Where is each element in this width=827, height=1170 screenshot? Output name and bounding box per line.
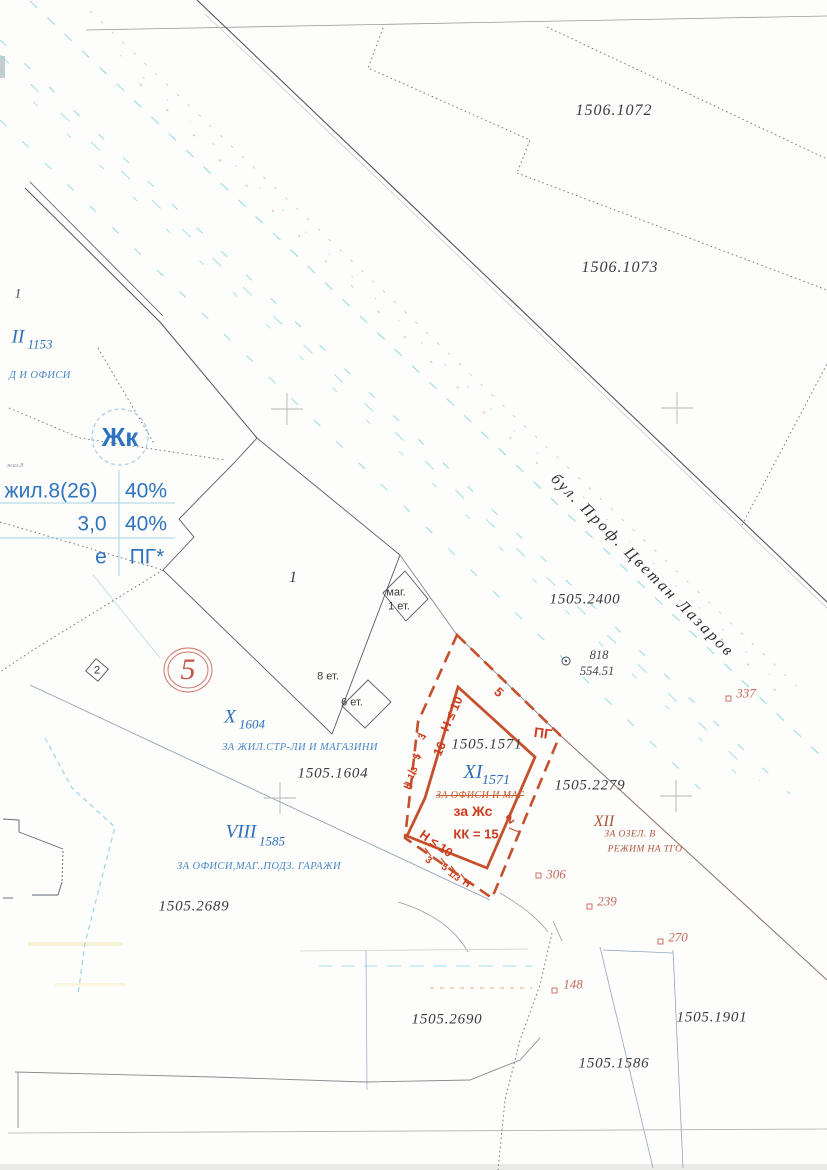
upi-x-roman: X bbox=[224, 708, 236, 727]
point-148-number: 148 bbox=[563, 978, 583, 991]
parcel-number-1505-2279: 1505.2279 bbox=[555, 779, 626, 794]
cadastral-map: 1 II 1153 Д И ОФИСИ Жк жил.8 жил.8(26) 4… bbox=[0, 0, 827, 1170]
point2-number: 2 bbox=[94, 666, 100, 677]
upi-x-use-label: ЗА ЖИЛ.СТР-ЛИ И МАГАЗИНИ bbox=[222, 743, 378, 754]
building1-number: 1 bbox=[289, 570, 297, 586]
parcel-number-1505-2400: 1505.2400 bbox=[550, 593, 621, 608]
plan-table-r1-right: 40% bbox=[125, 481, 167, 502]
point-239-number: 239 bbox=[597, 895, 617, 908]
plan-table-r3-left: е bbox=[95, 547, 107, 568]
upi-xi-pg-label: ПГ bbox=[533, 725, 553, 741]
point-337-number: 337 bbox=[736, 687, 756, 700]
parcel-number-1505-1604: 1505.1604 bbox=[298, 767, 369, 782]
parcel-number-1505-1901: 1505.1901 bbox=[677, 1011, 748, 1026]
survey-point-icon bbox=[536, 657, 731, 993]
plan-table-r2-right: 40% bbox=[125, 514, 167, 535]
upi-xi-number: 1571 bbox=[482, 774, 510, 788]
parcel-boundaries-west bbox=[0, 348, 225, 672]
corner-number: 1 bbox=[15, 287, 22, 300]
map-linework bbox=[0, 0, 827, 1170]
upi-x-number: 1604 bbox=[239, 718, 265, 731]
upi-xi-old-use-label: ЗА ОФИСИ И МАГ bbox=[436, 791, 524, 801]
upi-xii-use-line2: РЕЖИМ НА ТГО bbox=[608, 845, 683, 855]
plan-table-r2-left: 3,0 bbox=[77, 514, 106, 535]
upi-ii-use-label: Д И ОФИСИ bbox=[9, 371, 70, 382]
plan-table-r1-left: жил.8(26) bbox=[5, 481, 98, 502]
upi-xii-use-line1: ЗА ОЗЕЛ. В bbox=[604, 830, 655, 840]
left-structure-outline bbox=[3, 819, 63, 898]
zone-symbol: Жк bbox=[102, 424, 139, 450]
parcel-number-1506-1073: 1506.1073 bbox=[582, 260, 659, 276]
upi-viii-roman: VIII bbox=[226, 823, 257, 842]
block5-number: 5 bbox=[181, 655, 196, 685]
parcel-number-1505-1586: 1505.1586 bbox=[579, 1057, 650, 1072]
upi-xi-kk-label: КК = 15 bbox=[453, 828, 498, 841]
upi-ii-number: 1153 bbox=[27, 338, 52, 351]
sheet-frame-line bbox=[86, 16, 827, 30]
parcel-number-1505-2689: 1505.2689 bbox=[159, 900, 230, 915]
upi-xi-roman: XI bbox=[464, 762, 483, 782]
upi-xi-new-use-label: за Жс bbox=[454, 804, 493, 818]
parcel-number-1505-1571: 1505.1571 bbox=[452, 738, 523, 753]
building-8fl-label: 8 ет. bbox=[317, 672, 339, 683]
plan-table-r3-right: ПГ* bbox=[130, 547, 165, 568]
point-306-number: 306 bbox=[546, 868, 566, 881]
parcel-number-1506-1072: 1506.1072 bbox=[576, 103, 653, 119]
building-mag-label: маг. bbox=[386, 588, 405, 599]
point-270-number: 270 bbox=[668, 931, 688, 944]
upi-viii-number: 1585 bbox=[259, 835, 285, 848]
upi-viii-use-label: ЗА ОФИСИ,МАГ.,ПОДЗ. ГАРАЖИ bbox=[177, 862, 341, 873]
upi-xii-roman: XII bbox=[594, 814, 614, 830]
parcel-number-1505-2690: 1505.2690 bbox=[412, 1013, 483, 1028]
building-mag-floors: 1 ет. bbox=[388, 602, 410, 613]
tiny-edge-note: жил.8 bbox=[6, 463, 23, 470]
point-818-elevation: 554.51 bbox=[580, 665, 614, 678]
building-6fl-label: 6 ет. bbox=[341, 698, 363, 709]
point-818-number: 818 bbox=[590, 649, 609, 662]
upi-ii-roman: II bbox=[12, 328, 25, 347]
